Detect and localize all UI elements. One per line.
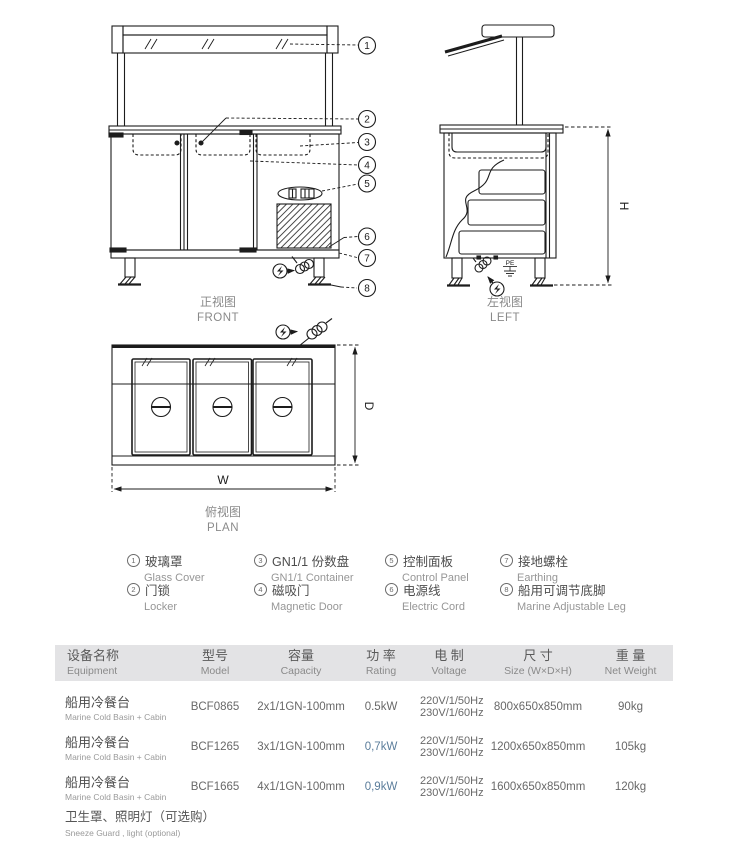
callout-1: 1 [364, 41, 370, 52]
header-en: Equipment [67, 665, 180, 677]
footnote-cn: 卫生罩、照明灯（可选购） [65, 806, 215, 825]
legend-cn: 磁吸门 [272, 580, 310, 599]
equipment-name-cell: 船用冷餐台 Marine Cold Basin + Cabin [55, 732, 180, 762]
callout-2: 2 [364, 115, 370, 126]
legend-num-6: 6 [385, 583, 398, 596]
header-cn: 尺 寸 [488, 649, 588, 664]
callout-8: 8 [364, 284, 370, 295]
door-lock-dot [175, 141, 179, 145]
callout-3: 3 [364, 138, 370, 149]
callout-6: 6 [364, 232, 370, 243]
equipment-cn: 船用冷餐台 [65, 732, 180, 751]
model-cell: BCF1665 [180, 781, 250, 793]
header-weight: 重 量 Net Weight [588, 649, 673, 677]
adjustable-legs [447, 258, 553, 286]
legend-num-8: 8 [500, 583, 513, 596]
dim-d-label: D [362, 402, 376, 411]
equipment-en: Marine Cold Basin + Cabin [65, 712, 180, 722]
weight-cell: 90kg [588, 701, 673, 713]
header-voltage: 电 制 Voltage [410, 649, 488, 677]
voltage-line-1: 220V/1/50Hz [420, 775, 488, 787]
capacity-cell: 4x1/1GN-100mm [250, 781, 352, 793]
size-cell: 800x650x850mm [488, 701, 588, 713]
legend-en: Electric Cord [402, 601, 465, 613]
voltage-cell: 220V/1/50Hz 230V/1/60Hz [410, 695, 488, 719]
dimension-h: H [554, 127, 631, 285]
legend-num-5: 5 [385, 554, 398, 567]
header-cn: 型号 [180, 649, 250, 664]
weight-cell: 120kg [588, 781, 673, 793]
rating-cell: 0.5kW [352, 701, 410, 713]
earthing-symbol: PE [503, 260, 517, 276]
header-cn: 设备名称 [67, 649, 180, 664]
voltage-line-1: 220V/1/50Hz [420, 735, 488, 747]
header-cn: 功 率 [352, 649, 410, 664]
dim-w-label: W [217, 473, 229, 487]
glass-hatch-marks [145, 39, 288, 49]
power-cord-icon [273, 257, 314, 279]
control-panel [278, 187, 322, 200]
header-cn: 电 制 [410, 649, 488, 664]
legend-item-magnetic-door: 4 磁吸门 Magnetic Door [254, 580, 343, 613]
equipment-cn: 船用冷餐台 [65, 772, 180, 791]
glass-cover-canopy [112, 26, 338, 126]
model-cell: BCF1265 [180, 741, 250, 753]
header-rating: 功 率 Rating [352, 649, 410, 677]
equipment-name-cell: 船用冷餐台 Marine Cold Basin + Cabin [55, 772, 180, 802]
capacity-cell: 2x1/1GN-100mm [250, 701, 352, 713]
header-en: Net Weight [588, 665, 673, 677]
cutaway-curve [446, 160, 504, 257]
table-row: 船用冷餐台 Marine Cold Basin + Cabin BCF0865 … [55, 687, 673, 727]
equipment-en: Marine Cold Basin + Cabin [65, 792, 180, 802]
legend-item-adjustable-leg: 8 船用可调节底脚 Marine Adjustable Leg [500, 580, 626, 613]
spec-table: 设备名称 Equipment 型号 Model 容量 Capacity 功 率 … [55, 645, 673, 807]
legend-en: Marine Adjustable Leg [517, 601, 626, 613]
header-en: Rating [352, 665, 410, 677]
callout-numbers: 1 2 3 4 5 6 7 8 [364, 41, 370, 295]
header-cn: 容量 [250, 649, 352, 664]
legend-item-locker: 2 门锁 Locker [127, 580, 177, 613]
equipment-en: Marine Cold Basin + Cabin [65, 752, 180, 762]
legend-cn: 电源线 [403, 580, 441, 599]
plan-view-label-cn: 俯视图 [205, 504, 241, 519]
angled-glass [445, 36, 502, 52]
legend-num-3: 3 [254, 554, 267, 567]
front-view-label-cn: 正视图 [200, 294, 236, 309]
header-capacity: 容量 Capacity [250, 649, 352, 677]
legend-en: Magnetic Door [271, 601, 343, 613]
weight-cell: 105kg [588, 741, 673, 753]
table-row: 船用冷餐台 Marine Cold Basin + Cabin BCF1665 … [55, 767, 673, 807]
header-equipment: 设备名称 Equipment [55, 649, 180, 677]
callout-leaders [202, 44, 358, 288]
header-en: Size (W×D×H) [488, 665, 588, 677]
footnote: 卫生罩、照明灯（可选购） Sneeze Guard , light (optio… [65, 806, 215, 838]
header-en: Model [180, 665, 250, 677]
front-view-label-en: FRONT [197, 312, 239, 324]
voltage-line-2: 230V/1/60Hz [420, 787, 488, 799]
legend-cn: 玻璃罩 [145, 551, 183, 570]
equipment-cn: 船用冷餐台 [65, 692, 180, 711]
callout-4: 4 [364, 161, 370, 172]
legend-cn: 门锁 [145, 580, 170, 599]
left-view: PE H 左视图 LEFT [440, 25, 631, 324]
front-view: 1 2 3 4 5 6 7 8 正视图 FRONT [109, 26, 376, 324]
legend-cn: GN1/1 份数盘 [272, 551, 349, 570]
power-cord-icon [276, 319, 332, 347]
voltage-line-2: 230V/1/60Hz [420, 747, 488, 759]
table-row: 船用冷餐台 Marine Cold Basin + Cabin BCF1265 … [55, 727, 673, 767]
legend-num-7: 7 [500, 554, 513, 567]
header-size: 尺 寸 Size (W×D×H) [488, 649, 588, 677]
voltage-line-1: 220V/1/50Hz [420, 695, 488, 707]
size-cell: 1200x650x850mm [488, 741, 588, 753]
left-view-label-en: LEFT [490, 312, 520, 324]
header-en: Capacity [250, 665, 352, 677]
size-cell: 1600x650x850mm [488, 781, 588, 793]
plan-view: D W 俯视图 PLAN [112, 319, 376, 535]
vent-grille [277, 204, 331, 248]
plan-view-label-en: PLAN [207, 522, 239, 534]
model-cell: BCF0865 [180, 701, 250, 713]
gn-containers [133, 134, 310, 155]
legend-cn: 接地螺栓 [518, 551, 568, 570]
legend-num-1: 1 [127, 554, 140, 567]
header-model: 型号 Model [180, 649, 250, 677]
rating-cell: 0,9kW [352, 781, 410, 793]
adjustable-legs [118, 258, 331, 285]
header-en: Voltage [410, 665, 488, 677]
voltage-cell: 220V/1/50Hz 230V/1/60Hz [410, 735, 488, 759]
legend-item-electric-cord: 6 电源线 Electric Cord [385, 580, 465, 613]
rating-cell: 0,7kW [352, 741, 410, 753]
capacity-cell: 3x1/1GN-100mm [250, 741, 352, 753]
legend-num-2: 2 [127, 583, 140, 596]
drain-handles [152, 398, 293, 417]
dimension-d: D [337, 345, 376, 465]
table-header-row: 设备名称 Equipment 型号 Model 容量 Capacity 功 率 … [55, 645, 673, 681]
voltage-line-2: 230V/1/60Hz [420, 707, 488, 719]
left-view-label-cn: 左视图 [487, 294, 523, 309]
datasheet-page: 1 2 3 4 5 6 7 8 正视图 FRONT [0, 0, 742, 851]
canopy-top [482, 25, 554, 37]
header-cn: 重 量 [588, 649, 673, 664]
legend-cn: 控制面板 [403, 551, 453, 570]
voltage-cell: 220V/1/50Hz 230V/1/60Hz [410, 775, 488, 799]
legend-num-4: 4 [254, 583, 267, 596]
inner-shelves [459, 170, 545, 254]
callout-5: 5 [364, 179, 370, 190]
technical-drawing: 1 2 3 4 5 6 7 8 正视图 FRONT [0, 0, 742, 545]
legend-en: Locker [144, 601, 177, 613]
footnote-en: Sneeze Guard , light (optional) [65, 828, 215, 838]
legend-cn: 船用可调节底脚 [518, 580, 606, 599]
dim-h-label: H [617, 202, 631, 211]
dimension-w: W [112, 467, 335, 492]
power-cord-icon [473, 257, 504, 296]
callout-7: 7 [364, 254, 370, 265]
equipment-name-cell: 船用冷餐台 Marine Cold Basin + Cabin [55, 692, 180, 722]
pe-label: PE [506, 260, 515, 267]
